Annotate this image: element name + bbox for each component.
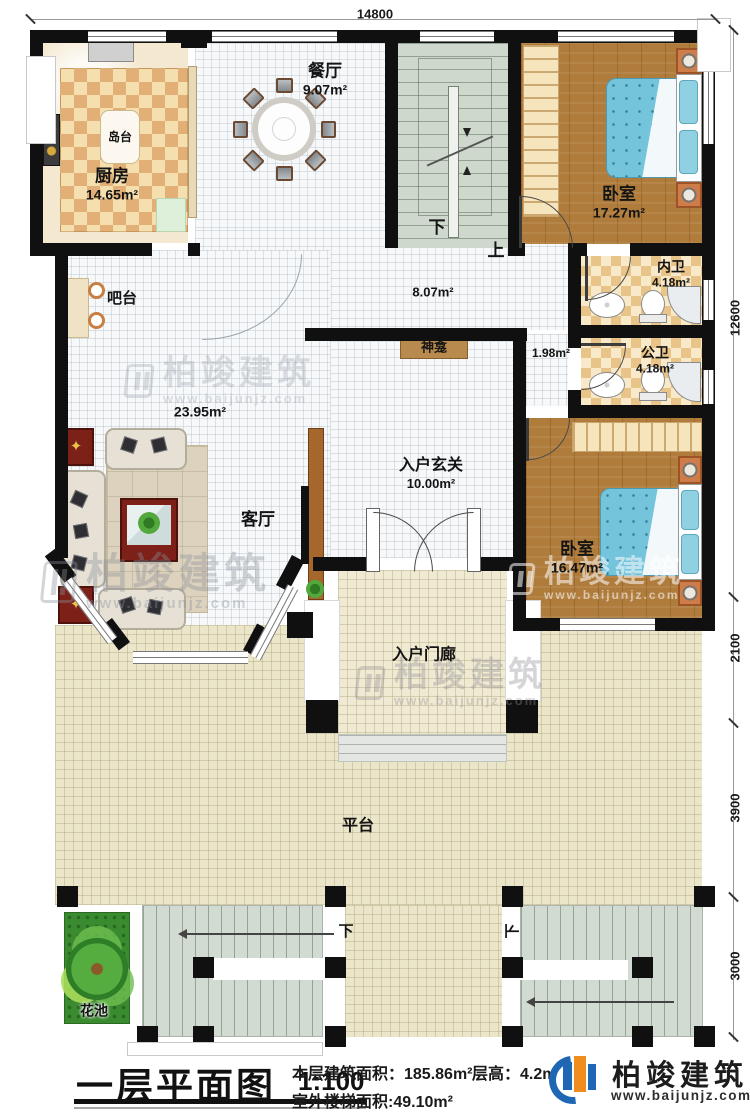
wardrobe-top bbox=[523, 45, 559, 217]
exterior-trim-box bbox=[26, 56, 56, 144]
living-name-label: 客厅 bbox=[241, 510, 275, 530]
bath-public-label: 公卫 4.18m² bbox=[636, 345, 674, 376]
column bbox=[502, 957, 523, 978]
dining-chair bbox=[321, 121, 336, 138]
stair-left-arrowhead-icon bbox=[178, 929, 187, 939]
window bbox=[420, 31, 494, 42]
bay-window bbox=[133, 651, 248, 664]
dining-area: 9.07m² bbox=[303, 82, 347, 99]
column bbox=[502, 1026, 523, 1047]
dimension-right-platform: 3900 bbox=[728, 794, 743, 823]
foyer-area: 10.00m² bbox=[399, 476, 463, 491]
wall bbox=[568, 405, 715, 418]
brand-logo-icon bbox=[545, 1048, 607, 1106]
living-area-label: 23.95m² bbox=[174, 404, 226, 421]
dining-chair bbox=[233, 121, 248, 138]
sofa-top bbox=[105, 428, 187, 470]
exterior-trim-box bbox=[127, 1042, 323, 1056]
hallway-area-label: 8.07m² bbox=[412, 284, 453, 299]
bath-public-toilet-tank bbox=[639, 392, 667, 401]
bedroom-lower-label: 卧室 16.47m² bbox=[551, 540, 603, 577]
bedroom-top-area: 17.27m² bbox=[593, 205, 645, 222]
wardrobe-lower bbox=[572, 422, 702, 452]
nightstand bbox=[676, 182, 702, 208]
wall bbox=[385, 30, 398, 248]
column bbox=[694, 1026, 715, 1047]
stair-top-rail bbox=[448, 86, 459, 238]
window bbox=[558, 31, 674, 42]
porch-column bbox=[306, 700, 338, 733]
stair-arrow-up-icon bbox=[463, 166, 471, 175]
island-label: 岛台 bbox=[108, 130, 132, 144]
stair-up-label: 上 bbox=[488, 241, 505, 261]
window bbox=[212, 31, 337, 42]
stair-arrow-down-icon bbox=[463, 128, 471, 137]
kitchen-name: 厨房 bbox=[86, 167, 138, 187]
bath-public-name: 公卫 bbox=[636, 345, 674, 362]
window bbox=[560, 618, 655, 631]
bay-column bbox=[287, 612, 313, 638]
wall bbox=[313, 557, 368, 571]
wall bbox=[630, 243, 702, 256]
column bbox=[694, 886, 715, 907]
column bbox=[325, 957, 346, 978]
column bbox=[57, 886, 78, 907]
brand-logo-bar bbox=[588, 1064, 596, 1090]
bed-top-pillow bbox=[679, 130, 698, 174]
watermark-brand: 柏竣建筑 bbox=[86, 552, 270, 596]
door-leaf bbox=[526, 418, 529, 461]
column bbox=[632, 1026, 653, 1047]
dimension-top-width: 14800 bbox=[357, 7, 393, 22]
bed-lower-pillow bbox=[681, 490, 699, 530]
stair-left-landing bbox=[213, 958, 323, 980]
nook-area-label: 1.98m² bbox=[532, 346, 570, 360]
wall bbox=[188, 243, 200, 256]
bath-inner-toilet-tank bbox=[639, 314, 667, 323]
dimension-right-stairs: 3000 bbox=[728, 952, 743, 981]
dimension-right-house: 12600 bbox=[728, 300, 743, 336]
kitchen-sliding-door bbox=[188, 66, 197, 218]
bath-public-area: 4.18m² bbox=[636, 361, 674, 375]
floor-plan: ✦ ✦ bbox=[0, 0, 750, 1117]
watermark-logo-icon bbox=[123, 364, 155, 398]
bar-stool bbox=[88, 282, 105, 299]
watermark-logo-icon bbox=[506, 563, 535, 595]
stair-left-down-label: 下 bbox=[338, 923, 353, 941]
dining-name: 餐厅 bbox=[303, 62, 347, 82]
tv-screen bbox=[301, 486, 309, 564]
stair-right-down-label: 下 bbox=[504, 923, 522, 938]
stair-right-landing bbox=[520, 960, 628, 980]
wall bbox=[305, 328, 527, 341]
watermark-logo-icon bbox=[40, 561, 78, 603]
bed-top-pillow bbox=[679, 80, 698, 124]
dining-label: 餐厅 9.07m² bbox=[303, 62, 347, 99]
column bbox=[193, 957, 214, 978]
brand-logo-bar bbox=[574, 1056, 586, 1092]
watermark-site: www.baijunjz.com bbox=[86, 596, 270, 612]
foyer-label: 入户玄关 10.00m² bbox=[399, 457, 463, 491]
bath-inner-name: 内卫 bbox=[652, 259, 690, 276]
stair-area-text: 室外楼梯面积:49.10m² bbox=[292, 1088, 453, 1112]
wall bbox=[181, 30, 207, 48]
column bbox=[325, 886, 346, 907]
wall bbox=[655, 618, 715, 631]
floor-area-text: 本层建筑面积：185.86m² bbox=[292, 1060, 473, 1084]
tv-plant bbox=[306, 580, 324, 598]
stair-right-arrowhead-icon bbox=[526, 997, 535, 1007]
kitchen-area: 14.65m² bbox=[86, 187, 138, 204]
bedroom-top-label: 卧室 17.27m² bbox=[593, 185, 645, 222]
dining-table-center bbox=[272, 117, 296, 141]
watermark: 柏竣建筑www.baijunjz.com bbox=[125, 356, 315, 405]
porch-steps bbox=[338, 734, 507, 762]
wall bbox=[568, 243, 581, 348]
stair-right-arrow-line bbox=[534, 1001, 674, 1003]
wall bbox=[55, 256, 68, 558]
foyer-floor bbox=[330, 341, 513, 558]
floor-height-text: 层高：4.2m bbox=[472, 1060, 556, 1084]
dimension-line-right bbox=[733, 28, 734, 1040]
bedroom-lower-area: 16.47m² bbox=[551, 560, 603, 577]
column bbox=[502, 886, 523, 907]
wall bbox=[581, 325, 702, 338]
shrine-label: 神龛 bbox=[421, 339, 447, 354]
bath-inner-area: 4.18m² bbox=[652, 275, 690, 289]
stair-left-arrow-line bbox=[186, 933, 334, 935]
watermark: 柏竣建筑www.baijunjz.com bbox=[42, 552, 270, 612]
dining-chair bbox=[276, 78, 293, 93]
tv-cabinet bbox=[308, 428, 324, 600]
dining-chair bbox=[276, 166, 293, 181]
wall bbox=[30, 243, 152, 256]
bar-label: 吧台 bbox=[107, 290, 137, 308]
dimension-right-porch: 2100 bbox=[728, 634, 743, 663]
watermark-site: www.baijunjz.com bbox=[394, 694, 546, 708]
coffee-table-plant bbox=[138, 512, 160, 534]
bedroom-top-name: 卧室 bbox=[593, 185, 645, 205]
door-leaf bbox=[519, 196, 522, 248]
brand-website: www.baijunjz.com bbox=[611, 1088, 750, 1103]
nook-floor bbox=[526, 334, 568, 406]
kitchen-sink bbox=[88, 40, 134, 62]
sofa-pillow bbox=[73, 523, 89, 539]
column bbox=[632, 957, 653, 978]
door-leaf bbox=[581, 343, 626, 346]
foyer-name: 入户玄关 bbox=[399, 457, 463, 476]
window bbox=[703, 280, 714, 320]
nightstand bbox=[678, 456, 702, 484]
door-leaf bbox=[585, 256, 588, 301]
kitchen-mat bbox=[156, 198, 186, 232]
flower-bed-tree bbox=[66, 938, 128, 1000]
wall bbox=[513, 618, 560, 631]
window bbox=[703, 370, 714, 404]
bed-top-sheet bbox=[640, 79, 678, 177]
platform-label: 平台 bbox=[342, 818, 374, 837]
porch-label: 入户门廊 bbox=[392, 647, 456, 666]
exterior-trim-box bbox=[697, 18, 731, 72]
brand-logo-bar bbox=[563, 1062, 572, 1090]
column bbox=[325, 1026, 346, 1047]
bar-stool bbox=[88, 312, 105, 329]
bath-inner-label: 内卫 4.18m² bbox=[652, 259, 690, 290]
kitchen-label: 厨房 14.65m² bbox=[86, 167, 138, 204]
watermark-logo-icon bbox=[354, 666, 386, 700]
flower-bed-label: 花池 bbox=[80, 1003, 108, 1020]
bedroom-lower-name: 卧室 bbox=[551, 540, 603, 560]
brand-logo-swoosh bbox=[539, 1046, 606, 1113]
platform-between-stairs bbox=[345, 905, 502, 1037]
window bbox=[88, 31, 166, 42]
watermark-site: www.baijunjz.com bbox=[544, 589, 684, 602]
watermark-brand: 柏竣建筑 bbox=[163, 356, 315, 392]
stair-down-label: 下 bbox=[429, 218, 446, 238]
